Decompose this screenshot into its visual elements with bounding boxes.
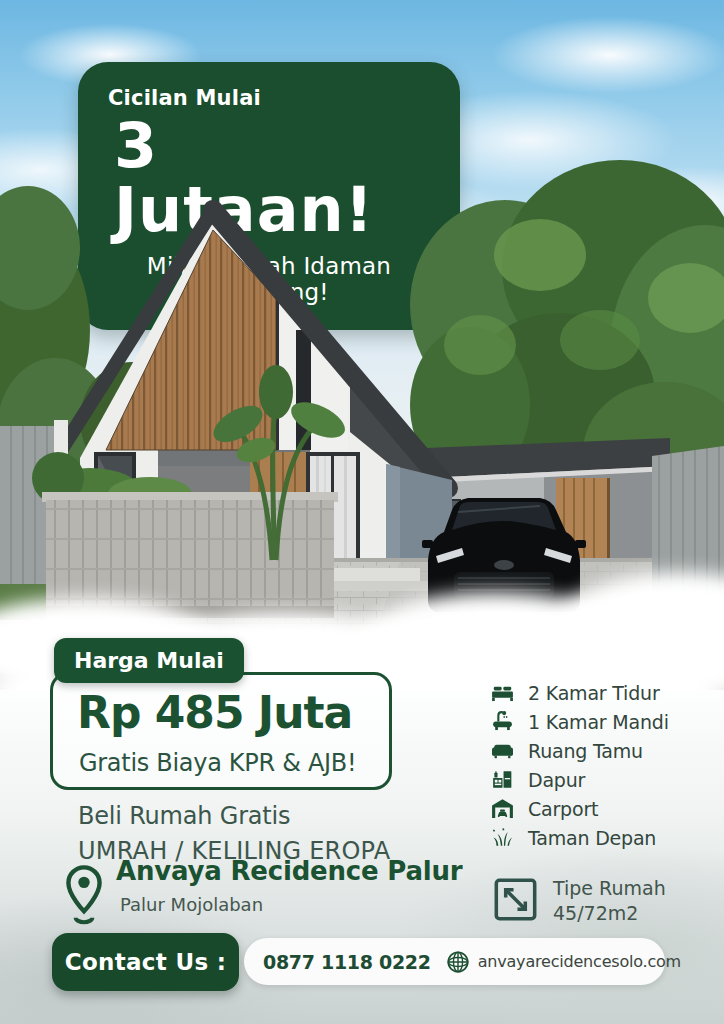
project-name: Anvaya Recidence Palur — [116, 856, 462, 886]
phone-number[interactable]: 0877 1118 0222 — [263, 951, 431, 973]
bed-icon — [490, 680, 515, 705]
feature-label: 1 Kamar Mandi — [528, 711, 669, 733]
project-text: Anvaya Recidence Palur Palur Mojolaban — [116, 856, 462, 915]
bath-icon — [490, 709, 515, 734]
house-type-label: Tipe Rumah — [553, 876, 666, 901]
feature-label: Taman Depan — [528, 827, 656, 849]
offer-tagline: Miliki Rumah Idaman Sekarang! — [104, 253, 434, 305]
website-url[interactable]: anvayarecidencesolo.com — [478, 952, 681, 971]
feature-label: Dapur — [528, 769, 585, 791]
feature-row: Dapur — [490, 765, 669, 794]
project-block: Anvaya Recidence Palur Palur Mojolaban — [62, 856, 462, 926]
offer-box: Cicilan Mulai 3 Jutaan! Miliki Rumah Ida… — [78, 62, 460, 330]
price-note: Gratis Biaya KPR & AJB! — [79, 749, 356, 777]
feature-row: 2 Kamar Tidur — [490, 678, 669, 707]
globe-icon — [445, 949, 471, 975]
feature-row: Ruang Tamu — [490, 736, 669, 765]
feature-label: Ruang Tamu — [528, 740, 643, 762]
feature-row: Taman Depan — [490, 823, 669, 852]
location-pin-icon — [62, 860, 106, 926]
feature-label: 2 Kamar Tidur — [528, 682, 660, 704]
project-location: Palur Mojolaban — [120, 894, 462, 915]
house-type-text: Tipe Rumah 45/72m2 — [553, 876, 666, 926]
house-type-block: Tipe Rumah 45/72m2 — [492, 876, 666, 926]
price-card: Rp 485 Juta Gratis Biaya KPR & AJB! — [50, 672, 392, 790]
feature-row: 1 Kamar Mandi — [490, 707, 669, 736]
measure-icon — [492, 876, 539, 923]
feature-row: Carport — [490, 794, 669, 823]
sofa-icon — [490, 738, 515, 763]
offer-kicker: Cicilan Mulai — [108, 86, 434, 110]
house-type-value: 45/72m2 — [553, 901, 666, 926]
contact-us-button[interactable]: Contact Us : — [52, 933, 239, 991]
real-estate-flyer: Cicilan Mulai 3 Jutaan! Miliki Rumah Ida… — [0, 0, 724, 1024]
carport-icon — [490, 796, 515, 821]
kitchen-icon — [490, 767, 515, 792]
offer-headline: 3 Jutaan! — [114, 114, 434, 243]
price-badge: Harga Mulai — [54, 638, 244, 683]
price-amount: Rp 485 Juta — [77, 687, 352, 738]
contact-pill: 0877 1118 0222 anvayarecidencesolo.com — [244, 938, 665, 985]
garden-icon — [490, 825, 515, 850]
feature-list: 2 Kamar Tidur 1 Kamar Mandi Ruang Tamu — [490, 678, 669, 852]
promo-line1: Beli Rumah Gratis — [78, 802, 390, 830]
feature-label: Carport — [528, 798, 598, 820]
